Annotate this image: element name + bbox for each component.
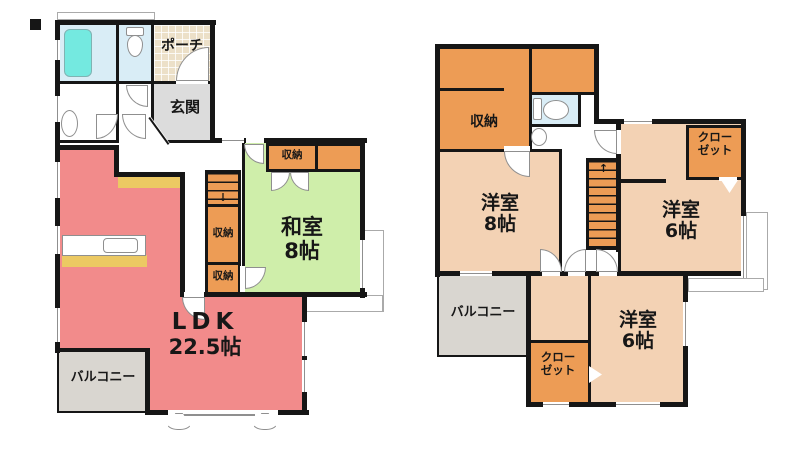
- window: [55, 162, 60, 198]
- element: ゼット: [531, 364, 585, 377]
- element: 22.5帖: [138, 336, 272, 360]
- label-storage-lower: 収納: [206, 271, 240, 283]
- wall: [526, 271, 531, 407]
- wall-opening: [246, 138, 264, 143]
- storage-strip-2f: [529, 46, 597, 95]
- window: [460, 271, 492, 276]
- window: [302, 360, 307, 392]
- label-room8: 洋室8帖: [458, 193, 542, 236]
- stairs-1f: ↓: [205, 170, 241, 207]
- window: [55, 96, 60, 122]
- label-storage-2f: 収納: [449, 115, 519, 131]
- wall: [435, 44, 440, 277]
- wall: [618, 179, 666, 183]
- room-storage-2f: [437, 46, 532, 152]
- room-entry-2f: [526, 271, 591, 343]
- bathtub-icon: [64, 29, 92, 77]
- element: 8帖: [252, 240, 352, 264]
- kitchen-counter-base: [62, 255, 147, 267]
- wall: [114, 172, 185, 177]
- label-balcony-1f: バルコニー: [60, 371, 146, 386]
- pillar: [30, 19, 41, 30]
- label-room6-bottom: 洋室6帖: [596, 310, 680, 353]
- hall-door-arc: [564, 249, 586, 272]
- washbasin-icon: [531, 128, 547, 146]
- wall: [180, 292, 367, 297]
- washbasin-icon: [61, 110, 78, 137]
- label-closet-top: クローゼット: [688, 131, 742, 157]
- label-room6-right: 洋室6帖: [639, 200, 723, 243]
- element: 6帖: [639, 221, 723, 242]
- element: 6帖: [596, 331, 680, 352]
- floorplan-canvas: ↓: [0, 0, 800, 465]
- label-balcony-2f: バルコニー: [443, 306, 523, 321]
- element: ゼット: [688, 144, 742, 157]
- label-entrance: 玄関: [157, 99, 213, 116]
- label-ldk: LDK22.5帖: [138, 310, 272, 359]
- room-ldk-fill: [147, 350, 305, 413]
- label-porch: ポーチ: [152, 39, 212, 55]
- wall: [55, 20, 216, 25]
- toilet-tank-icon: [533, 98, 542, 120]
- label-tatami-room: 和室8帖: [252, 216, 352, 263]
- element: クロー: [688, 131, 742, 144]
- wall: [55, 348, 147, 352]
- hall-door-arc: [594, 130, 617, 154]
- element: 洋室: [596, 310, 680, 331]
- stairs-down-arrow: ↓: [208, 192, 238, 203]
- window: [543, 402, 569, 407]
- storage-tatami-cell2: [315, 143, 363, 172]
- patio-door-line: [180, 414, 255, 416]
- element: 和室: [252, 216, 352, 240]
- wall: [440, 88, 504, 91]
- wall: [435, 44, 599, 49]
- element: LDK: [138, 310, 272, 336]
- window: [741, 216, 746, 278]
- window: [683, 302, 688, 346]
- label-storage-upper: 収納: [206, 228, 240, 240]
- window: [624, 119, 652, 124]
- toilet-bowl-icon: [543, 100, 569, 120]
- wall: [180, 172, 185, 297]
- element: 洋室: [458, 193, 542, 214]
- lower-roof-outline: [688, 278, 764, 292]
- kitchen-cabinet: [118, 177, 180, 188]
- label-closet-bottom: クローゼット: [531, 351, 585, 377]
- window: [302, 322, 307, 356]
- label-storage-closet: 収納: [268, 150, 316, 162]
- window: [222, 138, 244, 143]
- window: [55, 40, 60, 60]
- element: クロー: [531, 351, 585, 364]
- hall-door-arc: [596, 249, 618, 272]
- window: [55, 308, 60, 342]
- stairs-up-arrow: ↑: [589, 163, 618, 174]
- element: 洋室: [639, 200, 723, 221]
- window: [55, 226, 60, 254]
- window: [616, 402, 660, 407]
- window: [360, 240, 365, 288]
- kitchen-sink-icon: [103, 238, 138, 253]
- wall: [55, 145, 119, 150]
- element: 8帖: [458, 214, 542, 235]
- wall: [594, 44, 599, 124]
